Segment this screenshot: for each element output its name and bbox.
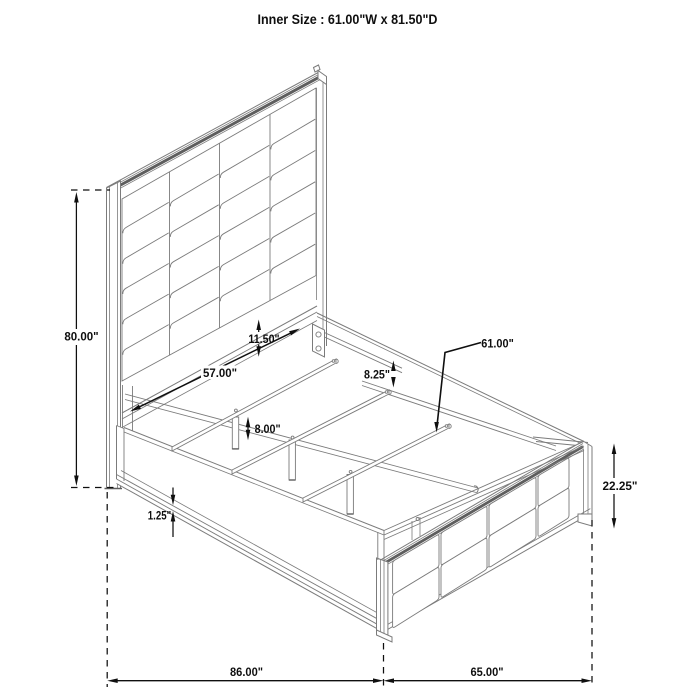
svg-text:65.00": 65.00": [471, 665, 504, 679]
svg-text:86.00": 86.00": [230, 665, 263, 679]
svg-text:8.25": 8.25": [364, 368, 390, 382]
svg-text:22.25": 22.25": [603, 479, 638, 493]
svg-text:11.50": 11.50": [248, 332, 279, 346]
svg-text:61.00": 61.00": [481, 337, 514, 351]
svg-text:8.00": 8.00": [255, 422, 281, 436]
svg-text:Inner Size : 61.00"W x 81.50"D: Inner Size : 61.00"W x 81.50"D: [258, 12, 438, 27]
svg-text:57.00": 57.00": [203, 366, 237, 380]
svg-text:80.00": 80.00": [64, 330, 98, 344]
svg-text:1.25": 1.25": [148, 509, 171, 523]
